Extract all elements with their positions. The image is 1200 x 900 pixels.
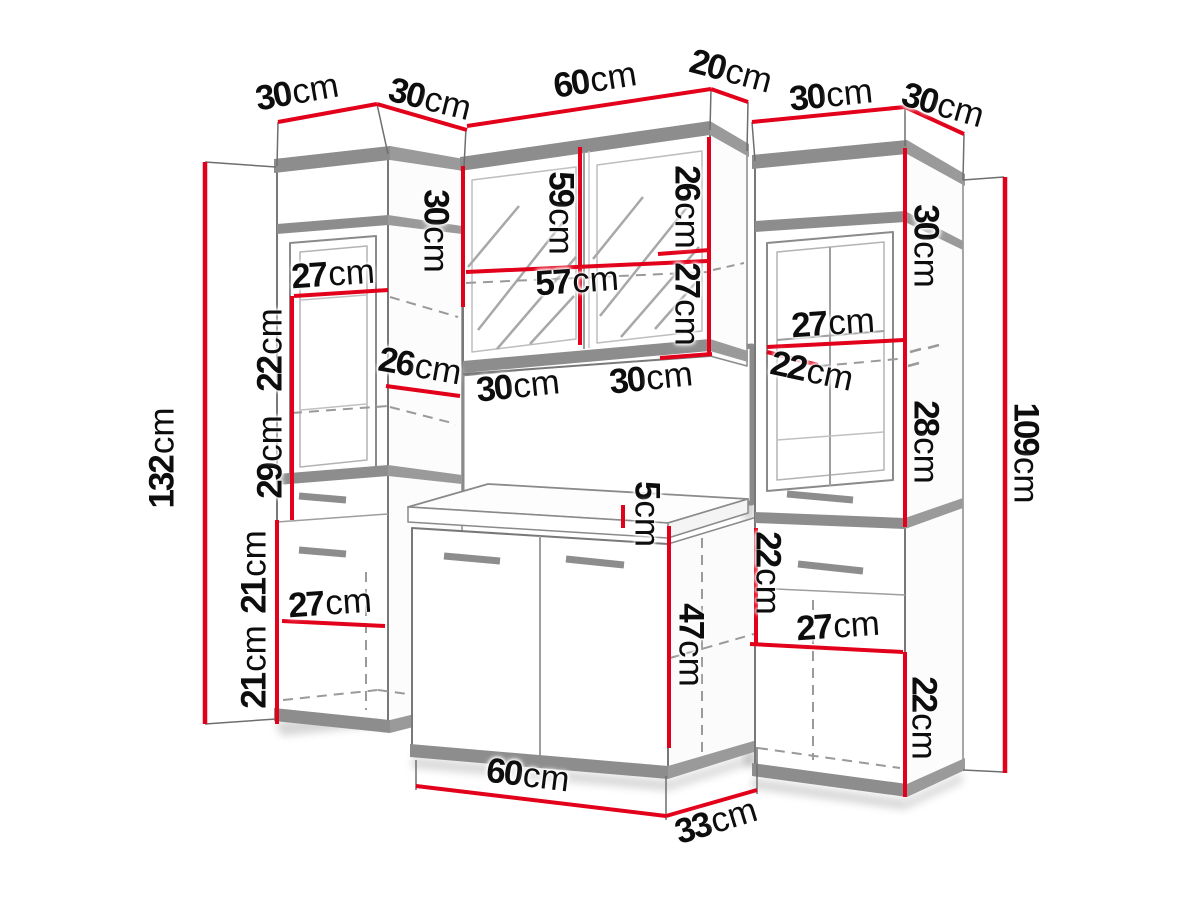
dim-left-lower-section-1-height: 21cm [237,530,272,614]
dimension-value: 132 [143,456,182,508]
dimension-unit: cm [706,790,762,841]
dim-left-shelf-width: 27cm [290,254,376,295]
dimension-unit: cm [933,85,989,135]
dimension-value: 60 [484,751,523,794]
dimension-unit: cm [251,308,290,355]
dimension-unit: cm [324,581,373,623]
dimension-unit: cm [421,79,476,128]
dimension-value: 27 [668,262,707,297]
dimension-value: 57 [534,262,572,303]
dimension-unit: cm [417,226,456,273]
dim-left-mid-section-height: 29cm [253,415,288,499]
dim-left-inner-depth: 26cm [376,342,464,391]
dim-right-cabinet-depth: 30cm [898,77,988,134]
dimension-unit: cm [644,354,694,398]
dimension-unit: cm [668,299,707,346]
dimension-unit: cm [143,407,182,454]
dim-left-cabinet-width: 30cm [253,68,341,117]
dimension-unit: cm [672,640,711,687]
dim-right-drawer-section-height: 22cm [751,531,786,615]
dim-vanity-depth: 33cm [671,792,761,850]
dimension-unit: cm [511,362,561,406]
dim-mirror-door-left-width: 30cm [475,364,562,408]
dimension-value: 21 [235,674,274,709]
dimension-unit: cm [412,346,465,393]
dim-mirror-door-height: 59cm [544,171,579,255]
dimension-value: 22 [767,343,809,388]
dimension-unit: cm [289,66,342,113]
dim-mirror-cabinet-depth: 20cm [686,43,776,98]
dim-right-shelf-width: 27cm [790,303,876,344]
dim-countertop-height: 5cm [630,481,665,547]
dimension-unit: cm [628,500,667,547]
dimension-unit: cm [571,259,620,301]
dim-right-inner-depth: 22cm [767,345,856,397]
dimension-value: 59 [542,171,581,206]
dimension-value: 26 [668,165,707,200]
dim-right-total-height: 109cm [1009,402,1044,503]
dimension-value: 22 [905,676,944,711]
dimension-value: 27 [287,584,325,625]
dimension-value: 26 [375,340,416,384]
dimension-value: 30 [417,189,456,224]
dimension-value: 21 [235,579,274,614]
dimension-value: 22 [749,531,788,566]
dim-right-mid-section-height: 28cm [909,400,944,484]
dimension-unit: cm [327,252,376,294]
dim-mirror-cabinet-width: 60cm [551,56,639,104]
dimension-unit: cm [587,54,639,100]
dimension-unit: cm [832,604,881,646]
dim-left-lower-section-2-height: 21cm [237,625,272,709]
dimension-unit: cm [907,437,946,484]
dimension-unit: cm [907,241,946,288]
dim-right-top-section-height: 30cm [909,204,944,288]
dimension-value: 28 [907,400,946,435]
dimension-value: 27 [290,255,328,296]
dimension-value: 109 [1007,402,1046,454]
dimension-unit: cm [668,202,707,249]
dimension-value: 30 [607,359,646,401]
dimension-value: 30 [252,74,293,118]
dimension-value: 22 [251,357,290,392]
dimension-value: 27 [790,304,828,345]
dimension-value: 29 [251,464,290,499]
dimension-unit: cm [905,713,944,760]
dimension-unit: cm [749,568,788,615]
dimension-value: 47 [672,603,711,638]
dim-mirror-upper-right-height: 26cm [670,165,705,249]
dimension-value: 30 [787,76,826,118]
dim-left-total-height: 132cm [145,407,180,508]
dim-vanity-width: 60cm [484,753,571,798]
dimension-unit: cm [824,71,874,115]
furniture-dimension-diagram: 30cm 30cm 60cm 20cm 30cm 30cm 132cm 27cm… [0,0,1200,900]
dimension-value: 60 [551,62,592,106]
dimension-unit: cm [235,625,274,672]
dimension-value: 30 [474,367,513,409]
dim-left-upper-section-height: 22cm [253,308,288,392]
dimension-unit: cm [521,755,572,799]
dim-mirror-left-section-height: 30cm [419,189,454,273]
dim-mirror-inner-width: 57cm [534,261,620,302]
dim-left-lower-shelf-width: 27cm [287,583,373,624]
dimension-value: 27 [795,607,833,648]
dimension-unit: cm [251,415,290,462]
dim-vanity-door-height: 47cm [674,603,709,687]
dim-left-cabinet-depth: 30cm [385,72,475,126]
dimension-unit: cm [1007,457,1046,504]
dimension-unit: cm [542,208,581,255]
dimension-unit: cm [803,351,857,399]
dimension-value: 30 [907,204,946,239]
dimension-labels: 30cm 30cm 60cm 20cm 30cm 30cm 132cm 27cm… [0,0,1200,900]
dimension-unit: cm [827,301,876,343]
dimension-unit: cm [721,51,776,101]
dim-right-bottom-section-height: 22cm [907,676,942,760]
dim-right-lower-shelf-width: 27cm [795,606,881,647]
dimension-unit: cm [235,530,274,577]
dim-right-cabinet-width: 30cm [788,73,875,117]
dimension-value: 5 [628,481,667,498]
dim-mirror-lower-right-height: 27cm [670,262,705,346]
dim-mirror-door-right-width: 30cm [608,356,695,400]
